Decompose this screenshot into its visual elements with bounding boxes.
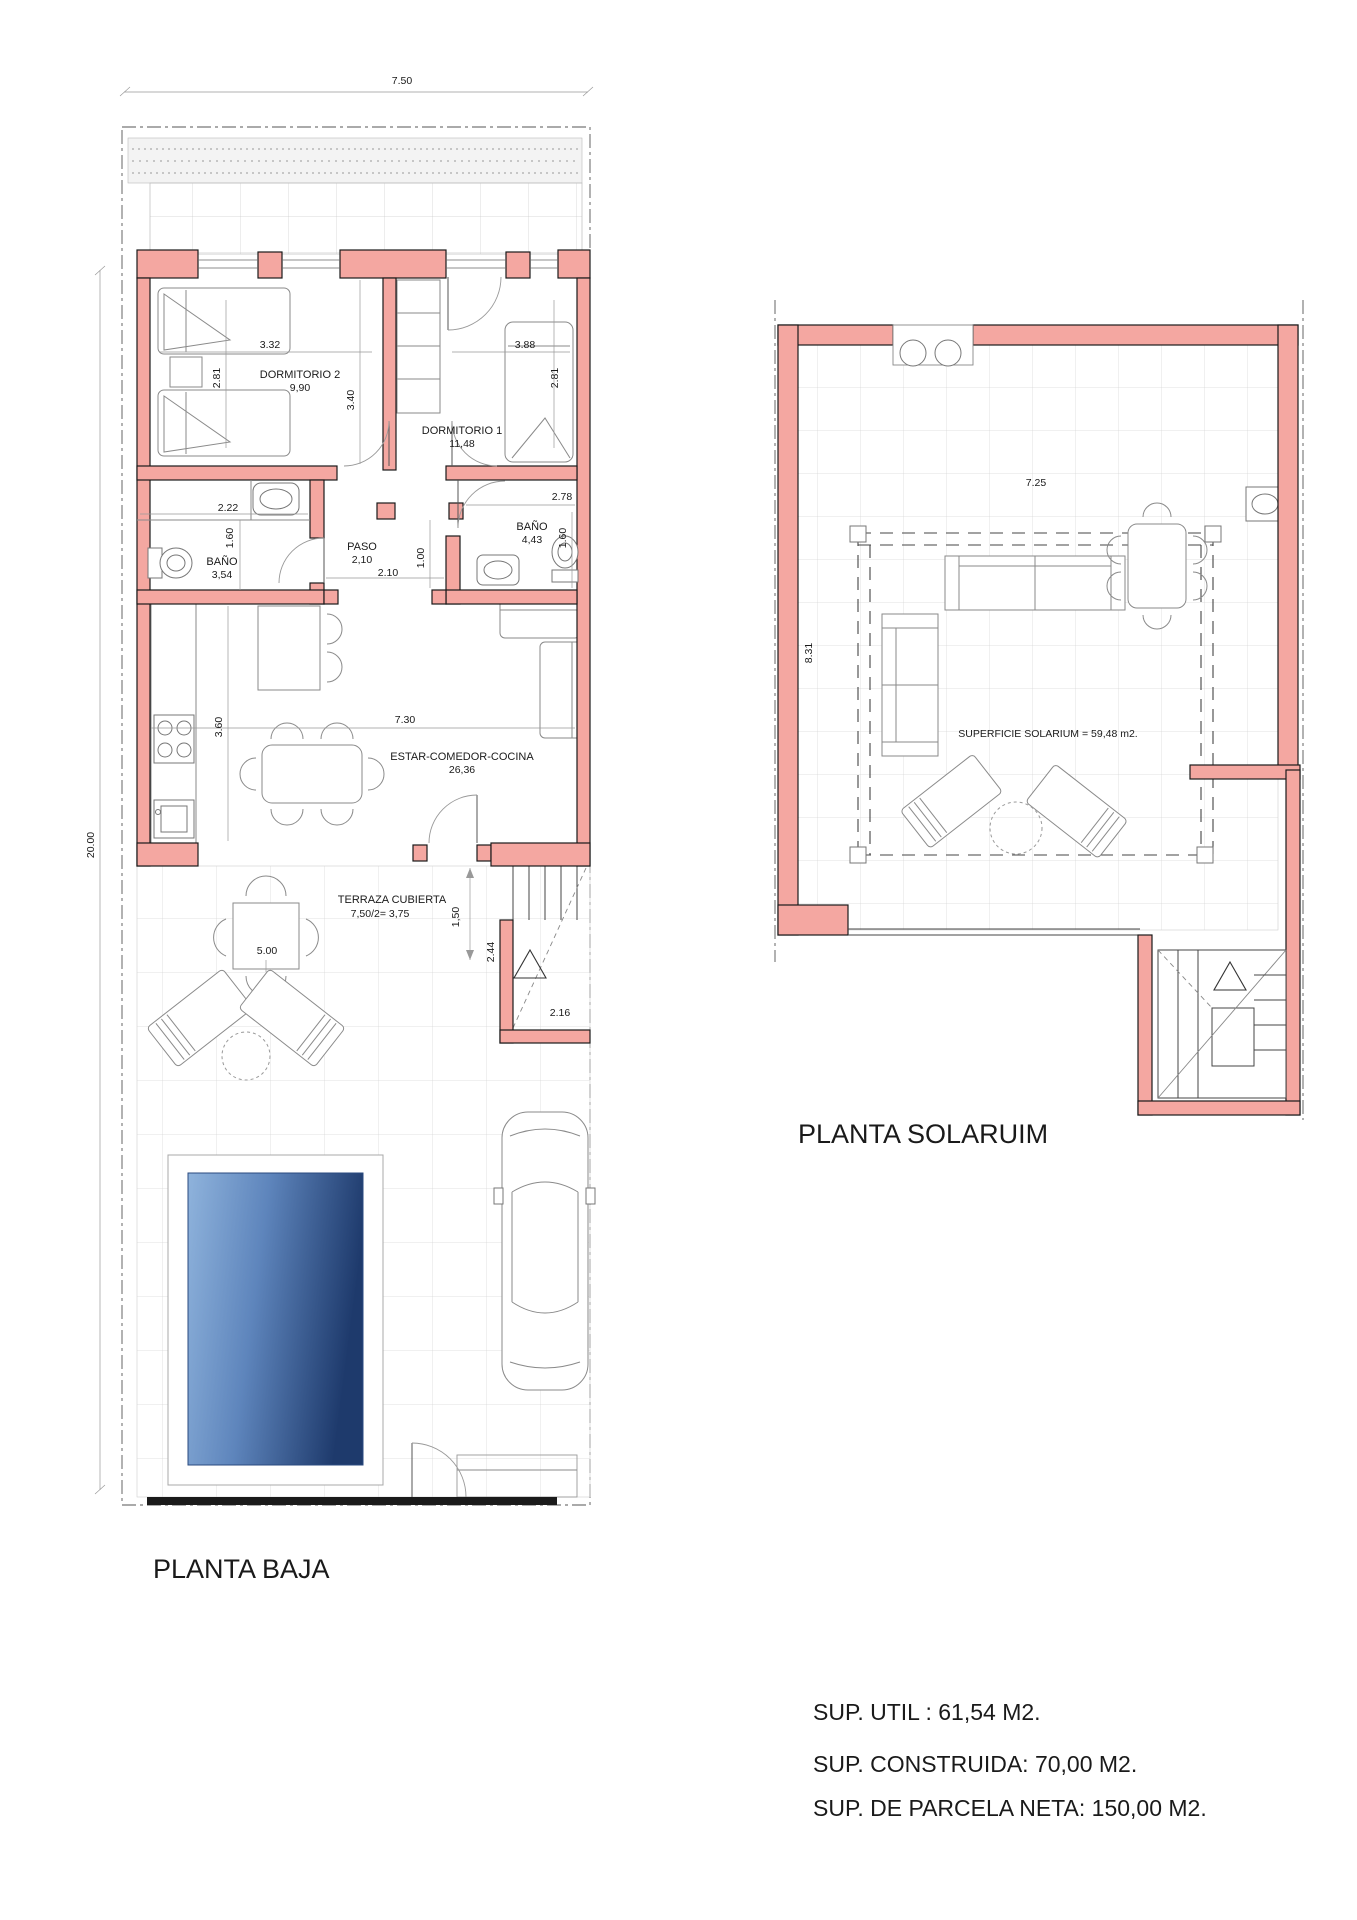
surface-summary: SUP. UTIL : 61,54 M2. SUP. CONSTRUIDA: 7… bbox=[813, 1699, 1207, 1821]
terrace-area: 7,50/2= 3,75 bbox=[351, 908, 410, 920]
kitchen-counter bbox=[151, 604, 196, 843]
car bbox=[494, 1112, 595, 1390]
bath2-area: 4,43 bbox=[522, 534, 543, 546]
floor-plan-sheet: 7.50 20.00 bbox=[0, 0, 1357, 1920]
dorm1-name: DORMITORIO 1 bbox=[422, 425, 502, 437]
summary-construida: SUP. CONSTRUIDA: 70,00 M2. bbox=[813, 1751, 1137, 1777]
dim-plot-width: 7.50 bbox=[392, 75, 413, 87]
dorm2-height: 2.81 bbox=[211, 368, 223, 389]
ground-floor-plan: 7.50 20.00 bbox=[85, 75, 595, 1584]
living-name: ESTAR-COMEDOR-COCINA bbox=[390, 751, 534, 763]
solarium-sofa-left bbox=[882, 614, 938, 756]
stairs-width: 2.16 bbox=[550, 1007, 571, 1019]
roof-tile-strip bbox=[150, 183, 582, 254]
living-area: 26,36 bbox=[449, 764, 475, 776]
dorm1-depth: 3.40 bbox=[345, 390, 357, 411]
plot-front-wall bbox=[147, 1497, 557, 1505]
bath1-width: 2.22 bbox=[218, 502, 239, 514]
terrace-name: TERRAZA CUBIERTA bbox=[338, 894, 447, 906]
paso-name: PASO bbox=[347, 541, 377, 553]
bath2-height: 1.60 bbox=[557, 528, 569, 549]
solarium-stairs bbox=[1158, 950, 1286, 1098]
dorm2-width: 3.32 bbox=[260, 339, 281, 351]
dorm1-area: 11,48 bbox=[449, 438, 475, 450]
dorm2-area: 9,90 bbox=[290, 382, 311, 394]
terrace-width: 5.00 bbox=[257, 945, 278, 957]
paso-height: 1.00 bbox=[415, 548, 427, 569]
dorm1-width: 3.88 bbox=[515, 339, 536, 351]
sofa bbox=[500, 600, 583, 738]
swimming-pool bbox=[168, 1155, 383, 1485]
dorm2-name: DORMITORIO 2 bbox=[260, 369, 340, 381]
solarium-plan: 7.25 8.31 SUPERFICIE SOLARIUM = 59,48 m2… bbox=[775, 300, 1303, 1149]
bath2-width: 2.78 bbox=[552, 491, 573, 503]
solarium-title: PLANTA SOLARUIM bbox=[798, 1119, 1048, 1149]
pool-water bbox=[188, 1173, 363, 1465]
living-desk bbox=[258, 606, 342, 690]
bath1-area: 3,54 bbox=[212, 569, 233, 581]
solarium-height: 8.31 bbox=[803, 643, 815, 664]
solarium-width: 7.25 bbox=[1026, 477, 1047, 489]
bath1-name: BAÑO bbox=[206, 555, 238, 568]
gravel-strip bbox=[128, 138, 582, 183]
bath1-height: 1.60 bbox=[224, 528, 236, 549]
dim-plot-height: 20.00 bbox=[85, 832, 97, 858]
solarium-sofa-top bbox=[945, 556, 1125, 610]
dorm1-height: 2.81 bbox=[549, 368, 561, 389]
paso-width: 2.10 bbox=[378, 567, 399, 579]
summary-parcela: SUP. DE PARCELA NETA: 150,00 M2. bbox=[813, 1795, 1207, 1821]
terrace-height: 1,50 bbox=[450, 907, 462, 928]
living-width: 7.30 bbox=[395, 714, 416, 726]
dim-left: 20.00 bbox=[85, 266, 105, 1494]
living-height: 3.60 bbox=[213, 717, 225, 738]
ground-floor-title: PLANTA BAJA bbox=[153, 1554, 330, 1584]
bath2-name: BAÑO bbox=[516, 520, 548, 533]
summary-util: SUP. UTIL : 61,54 M2. bbox=[813, 1699, 1041, 1725]
paso-area: 2,10 bbox=[352, 554, 373, 566]
dim-top: 7.50 bbox=[120, 75, 593, 96]
solarium-surface-label: SUPERFICIE SOLARIUM = 59,48 m2. bbox=[958, 728, 1137, 740]
dining-table bbox=[240, 723, 384, 825]
stairs-height: 2.44 bbox=[485, 942, 497, 963]
plans-drawing: 7.50 20.00 bbox=[0, 0, 1357, 1920]
